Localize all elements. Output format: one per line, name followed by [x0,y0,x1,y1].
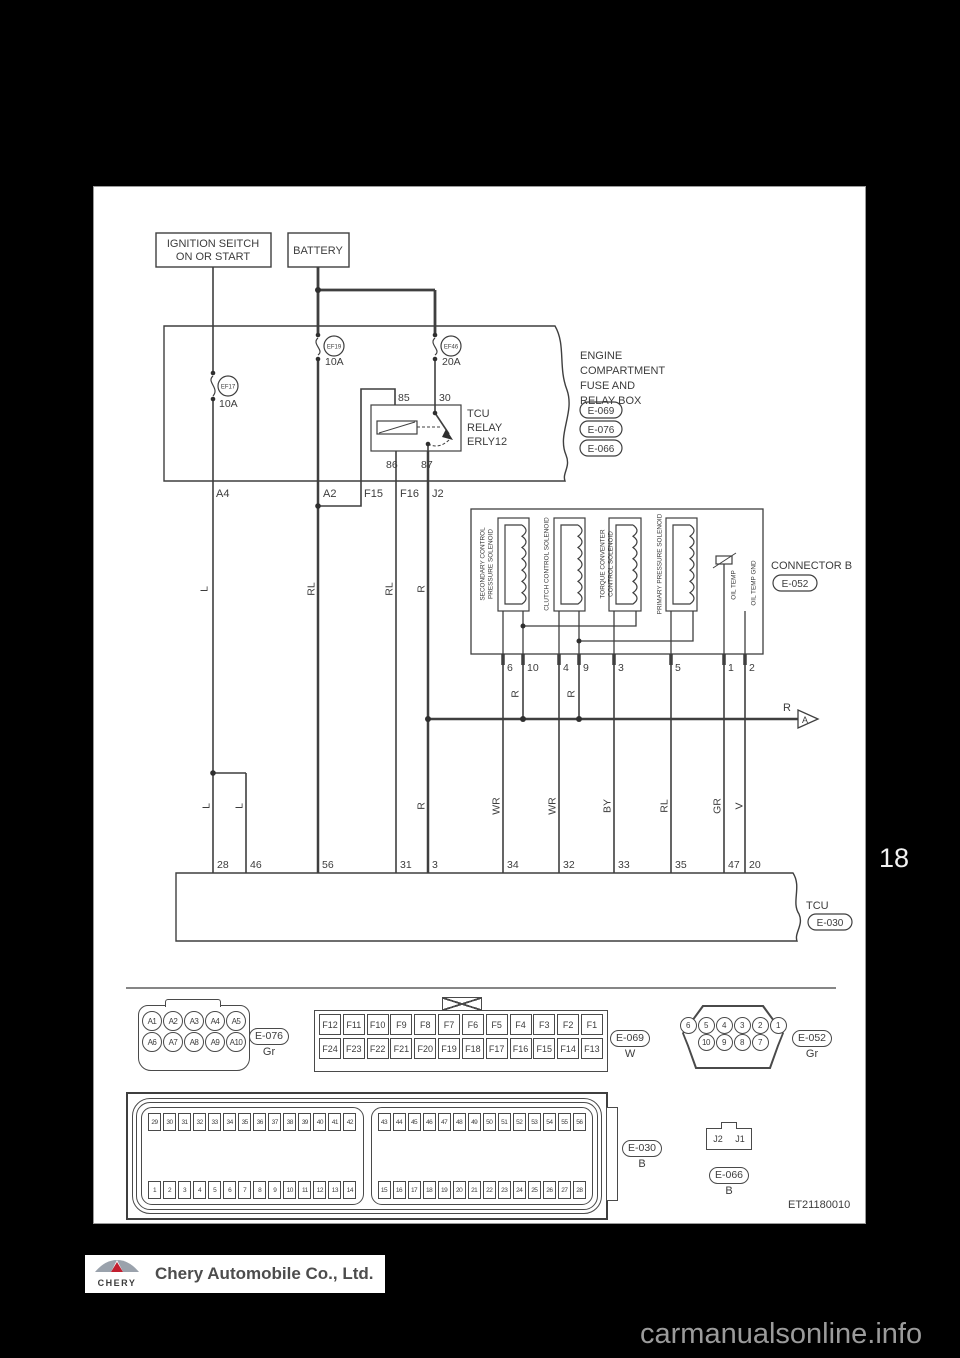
connector-pin: A4 [205,1011,225,1031]
tcu-pin-32: 32 [563,859,575,871]
connector-pin: 15 [378,1181,391,1199]
tcu-pin-47: 47 [728,859,740,871]
e076-row1: A1A2A3A4A5 [139,1011,249,1031]
connb-pin-3: 3 [618,662,624,674]
connector-view-e076: A1A2A3A4A5 A6A7A8A9A10 [138,1005,250,1071]
connector-pin: A8 [184,1032,204,1052]
connector-pin: 6 [680,1017,697,1034]
connector-pin: 8 [734,1034,751,1051]
connector-pin: F2 [557,1014,579,1035]
connector-pin: 23 [498,1181,511,1199]
tcu-pin-33: 33 [618,859,630,871]
connector-pin: F11 [343,1014,365,1035]
tcu-pin-3: 3 [432,859,438,871]
relay-name-line1: TCU [467,408,490,420]
e030-right-half: 4344454647484950515253545556 15161718192… [371,1107,594,1205]
connector-pin: 54 [543,1113,556,1131]
connector-pin: 45 [408,1113,421,1131]
connector-pin: 5 [208,1181,221,1199]
connector-pin: 38 [283,1113,296,1131]
connector-pin: A2 [163,1011,183,1031]
wire-color-t20: V [734,802,746,809]
scanned-manual-page: { "page": { "number": "18", "diagram_cod… [0,0,960,1358]
connector-pin: 1 [770,1017,787,1034]
connector-pin: 52 [513,1113,526,1131]
connector-pin: F4 [510,1014,532,1035]
connector-pin: 8 [253,1181,266,1199]
connector-b-title: CONNECTOR B [771,560,852,572]
connector-pin: F23 [343,1038,365,1059]
connector-pin: F14 [557,1038,579,1059]
connector-pin: A10 [226,1032,246,1052]
connector-pin: 4 [193,1181,206,1199]
offpage-arrow-label: A [802,715,808,725]
wire-color-t34: WR [491,797,503,815]
solenoid-symbols [498,518,736,611]
label-e069: E-069 W [610,1030,650,1060]
connector-pin: 44 [393,1113,406,1131]
badge-e076-view: E-076 [249,1028,289,1045]
connector-pin: 2 [752,1017,769,1034]
chery-logo-icon: CHERY [91,1258,143,1290]
e030-right-bottom-row: 1516171819202122232425262728 [378,1181,587,1199]
e030-left-top-row: 2930313233343536373839404142 [148,1113,357,1131]
connector-pin: 3 [178,1181,191,1199]
connector-pin: 37 [268,1113,281,1131]
connector-pin: 27 [558,1181,571,1199]
connector-pin: 4 [716,1017,733,1034]
connb-pin-4: 4 [563,662,569,674]
connector-e076-tab [165,999,221,1007]
connector-pin: 47 [438,1113,451,1131]
connb-pin-9: 9 [583,662,589,674]
label-e076: E-076 Gr [249,1028,289,1058]
e069-row2: F24F23F22F21F20F19F18F17F16F15F14F13 [319,1038,603,1059]
connector-pin: F5 [486,1014,508,1035]
connector-pin: F20 [414,1038,436,1059]
connector-pin: F1 [581,1014,603,1035]
wire-branch-to-tcu46 [213,773,246,873]
e076-row2: A6A7A8A9A10 [139,1032,249,1052]
color-e052: Gr [806,1048,818,1060]
connector-b-pin-stubs [503,654,745,665]
tcu-pin-46: 46 [250,859,262,871]
tcu-pin-28: 28 [217,859,229,871]
connector-pin: 55 [558,1113,571,1131]
connector-pin: F22 [367,1038,389,1059]
connector-pin: 48 [453,1113,466,1131]
connb-pin-10: 10 [527,662,539,674]
connector-pin: 14 [343,1181,356,1199]
fusebox-title-line2: COMPARTMENT [580,365,665,377]
connector-pin: 46 [423,1113,436,1131]
connector-pin: 25 [528,1181,541,1199]
tcu-box [176,873,800,941]
connector-pin: 51 [498,1113,511,1131]
wire-color-t33: BY [602,799,614,813]
fuse-ef46-id: EF46 [444,345,459,351]
connector-pin: F19 [438,1038,460,1059]
footer-brand-bar: CHERY Chery Automobile Co., Ltd. [85,1255,385,1293]
connector-pin: 39 [298,1113,311,1131]
e030-side-tab [606,1107,618,1201]
connector-view-e066: J2 J1 [706,1128,752,1150]
tcu-title: TCU [806,900,829,912]
connector-pin: F18 [462,1038,484,1059]
fuse-ef19-id: EF19 [327,345,342,351]
connector-e069-tab [442,997,482,1011]
diagram-code: ET21180010 [788,1199,850,1211]
badge-e066-view: E-066 [709,1167,749,1184]
connector-pin: J1 [729,1129,751,1149]
connector-pin: F15 [533,1038,555,1059]
fuse-ef17-id: EF17 [221,385,236,391]
connector-pin: 26 [543,1181,556,1199]
badge-e030-view: E-030 [622,1140,662,1157]
connector-pin: A5 [226,1011,246,1031]
connector-pin: 5 [698,1017,715,1034]
solenoid-1-label-line2: PRESSURE SOLENOID [488,529,495,599]
color-e066: B [725,1185,732,1197]
connector-pin: 41 [328,1113,341,1131]
connector-pin: 31 [178,1113,191,1131]
wire-color-j2: R [416,585,428,593]
wire-color-t46: L [234,803,246,809]
connector-pin: 12 [313,1181,326,1199]
solenoid-3-label-line1: TORQUE CONVENTER [600,529,607,599]
connector-pin: A3 [184,1011,204,1031]
connector-pin: 32 [193,1113,206,1131]
connector-pin: 11 [298,1181,311,1199]
connector-pin: F6 [462,1014,484,1035]
connector-pin: F10 [367,1014,389,1035]
connector-pin: 1 [148,1181,161,1199]
bus-wire-color: R [783,702,791,714]
badge-e066: E-066 [588,444,615,455]
solenoid-1-label-line1: SECONDARY CONTROL [480,527,487,601]
connector-pin: 35 [238,1113,251,1131]
battery-label: BATTERY [293,245,343,257]
relay-name-line2: RELAY [467,422,503,434]
ignition-label-line2: ON OR START [176,251,250,263]
wire-color-t3: R [416,802,428,810]
wire-color-b9: R [566,690,578,698]
company-name: Chery Automobile Co., Ltd. [155,1264,373,1284]
connector-pin: 50 [483,1113,496,1131]
badge-e069: E-069 [588,406,615,417]
color-e069: W [625,1048,635,1060]
connector-pin: A7 [163,1032,183,1052]
connector-view-e069: F12F11F10F9F8F7F6F5F4F3F2F1 F24F23F22F21… [314,1010,608,1072]
relay-pin-87: 87 [421,459,433,471]
connector-pin: F13 [581,1038,603,1059]
pin-j2: J2 [432,488,444,500]
page-number: 18 [879,843,909,874]
connector-pin: 2 [163,1181,176,1199]
connector-pin: 53 [528,1113,541,1131]
wire-color-b10: R [510,690,522,698]
connector-pin: 20 [453,1181,466,1199]
connector-pin: 33 [208,1113,221,1131]
tcu-pin-35: 35 [675,859,687,871]
connector-pin: 30 [163,1113,176,1131]
relay-pin-85: 85 [398,392,410,404]
color-e076: Gr [263,1046,275,1058]
chery-logo-wordmark: CHERY [98,1278,137,1288]
solenoid-internal-wires [503,564,745,654]
connector-pin: 22 [483,1181,496,1199]
connector-pin: 56 [573,1113,586,1131]
connector-pin: A6 [142,1032,162,1052]
fusebox-title-line1: ENGINE [580,350,622,362]
wire-color-f16: RL [384,582,396,596]
connb-pin-2: 2 [749,662,755,674]
connector-pin: 36 [253,1113,266,1131]
connector-pin: F21 [390,1038,412,1059]
connector-pin: F17 [486,1038,508,1059]
solenoid-4-label: PRIMARY PRESSURE SOLENOID [657,513,664,614]
connector-pin: A1 [142,1011,162,1031]
wire-color-t47: GR [712,798,724,814]
connector-pin: 6 [223,1181,236,1199]
connector-pin: F24 [319,1038,341,1059]
connector-pin: 3 [734,1017,751,1034]
connector-pin: 29 [148,1113,161,1131]
connector-pin: 9 [268,1181,281,1199]
connb-pin-6: 6 [507,662,513,674]
connector-pin: 10 [283,1181,296,1199]
connector-pin: 13 [328,1181,341,1199]
label-e066: E-066 B [701,1167,757,1197]
connector-pin: 18 [423,1181,436,1199]
tcu-pin-31: 31 [400,859,412,871]
watermark-text: carmanualsonline.info [640,1318,922,1351]
pin-f16: F16 [400,488,419,500]
connector-b-box [471,509,763,654]
connector-pin: 42 [343,1113,356,1131]
wire-color-t35: RL [659,799,671,813]
connector-pin: 9 [716,1034,733,1051]
connector-pin: 49 [468,1113,481,1131]
oil-temp-gnd-label: OIL TEMP GND [751,560,758,606]
color-e030: B [638,1158,645,1170]
ignition-label-line1: IGNITION SEITCH [167,238,259,250]
connector-b-output-wires [503,665,745,873]
connector-pin: 10 [698,1034,715,1051]
connector-view-e052: 654321 10987 [682,1005,784,1069]
tcu-pin-34: 34 [507,859,519,871]
label-e052: E-052 Gr [792,1030,832,1060]
solenoid-2-label: CLUTCH CONTROL SOLENOID [544,517,551,611]
wire-color-a4: L [199,586,211,592]
e052-row2: 10987 [682,1034,784,1051]
pin-a2: A2 [323,488,336,500]
connector-pin: F8 [414,1014,436,1035]
connector-pin: 7 [752,1034,769,1051]
wire-color-t32: WR [547,797,559,815]
e030-left-half: 2930313233343536373839404142 12345678910… [141,1107,364,1205]
badge-e076: E-076 [588,425,615,436]
connector-pin: F9 [390,1014,412,1035]
badge-e052-view: E-052 [792,1030,832,1047]
e069-row1: F12F11F10F9F8F7F6F5F4F3F2F1 [319,1014,603,1035]
badge-e030-diagram: E-030 [817,918,844,929]
solenoid-3-label-line2: CONTROL SOLENOID [608,531,615,597]
battery-feed-wires [318,267,435,335]
oil-temp-label: OIL TEMP [731,570,738,599]
connector-pin: 17 [408,1181,421,1199]
connector-pin: 19 [438,1181,451,1199]
fuse-ef46-rating: 20A [442,356,461,368]
pin-a4: A4 [216,488,229,500]
tcu-relay [371,405,461,451]
connector-pin: F7 [438,1014,460,1035]
connector-pin: 21 [468,1181,481,1199]
wire-color-a2: RL [306,582,318,596]
tcu-pin-20: 20 [749,859,761,871]
connector-pin: 16 [393,1181,406,1199]
connector-pin: F3 [533,1014,555,1035]
connector-pin: F16 [510,1038,532,1059]
connector-pin: 43 [378,1113,391,1131]
connector-view-e030: 2930313233343536373839404142 12345678910… [126,1092,608,1220]
connector-pin: J2 [707,1129,729,1149]
badge-e052-diagram: E-052 [782,579,809,590]
connector-pin: 40 [313,1113,326,1131]
connector-pin: F12 [319,1014,341,1035]
relay-pin-30: 30 [439,392,451,404]
connector-e066-tab [721,1122,737,1129]
badge-e069-view: E-069 [610,1030,650,1047]
e030-right-top-row: 4344454647484950515253545556 [378,1113,587,1131]
wiring-diagram-page: IGNITION SEITCH ON OR START BATTERY EF17… [93,186,866,1224]
e052-row1: 654321 [682,1017,784,1034]
connector-pin: 7 [238,1181,251,1199]
connector-pin: 24 [513,1181,526,1199]
pin-f15: F15 [364,488,383,500]
relay-pin-86: 86 [386,459,398,471]
connb-pin-5: 5 [675,662,681,674]
connector-pin: 34 [223,1113,236,1131]
connb-pin-1: 1 [728,662,734,674]
e030-left-bottom-row: 1234567891011121314 [148,1181,357,1199]
fuse-ef17-rating: 10A [219,398,238,410]
connector-pin: A9 [205,1032,225,1052]
wire-color-t28: L [201,803,213,809]
relay-name-line3: ERLY12 [467,436,507,448]
fusebox-title-line3: FUSE AND [580,380,635,392]
label-e030: E-030 B [622,1140,662,1170]
tcu-pin-56: 56 [322,859,334,871]
connector-pin: 28 [573,1181,586,1199]
fuse-ef19-rating: 10A [325,356,344,368]
